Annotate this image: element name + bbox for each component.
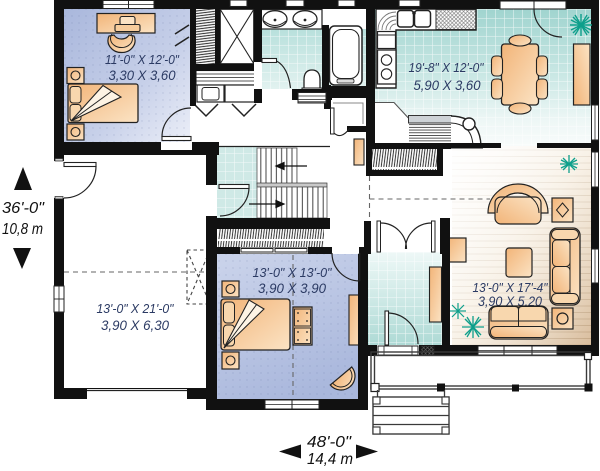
svg-text:3,90 X 3,90: 3,90 X 3,90 (258, 280, 326, 296)
svg-text:3,90 X 6,30: 3,90 X 6,30 (101, 317, 169, 333)
svg-text:48'-0": 48'-0" (307, 434, 352, 451)
svg-text:14,4 m: 14,4 m (307, 451, 353, 468)
svg-text:11'-0" X 12'-0": 11'-0" X 12'-0" (105, 53, 180, 67)
svg-text:5,90 X 3,60: 5,90 X 3,60 (414, 77, 481, 93)
svg-text:13'-0" X 13'-0": 13'-0" X 13'-0" (253, 266, 333, 280)
svg-text:3,30 X 3,60: 3,30 X 3,60 (109, 67, 176, 83)
svg-text:19'-8" X 12'-0": 19'-8" X 12'-0" (409, 61, 485, 75)
svg-text:36'-0": 36'-0" (2, 200, 45, 217)
svg-text:13'-0" X 21'-0": 13'-0" X 21'-0" (97, 302, 175, 316)
svg-text:10,8 m: 10,8 m (2, 221, 43, 238)
